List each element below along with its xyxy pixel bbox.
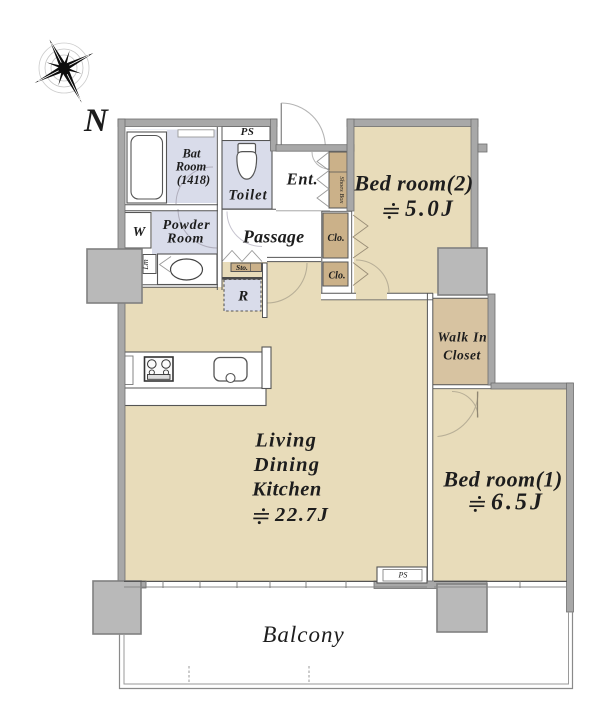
svg-text:(1418): (1418) <box>177 173 210 187</box>
svg-text:Room: Room <box>175 160 207 174</box>
svg-text:Sto.: Sto. <box>236 263 248 272</box>
svg-text:Room: Room <box>166 232 204 247</box>
svg-text:Bed room(1): Bed room(1) <box>442 466 562 491</box>
svg-text:PS: PS <box>241 126 255 138</box>
svg-text:Clo.: Clo. <box>328 233 345 244</box>
svg-text:22.7J: 22.7J <box>274 504 330 526</box>
svg-text:Shoes Box: Shoes Box <box>338 177 345 204</box>
svg-text:W: W <box>133 225 147 240</box>
svg-text:Bat: Bat <box>181 147 201 161</box>
svg-text:Passage: Passage <box>242 227 304 247</box>
svg-text:Living: Living <box>254 430 317 452</box>
svg-text:Balcony: Balcony <box>262 622 344 647</box>
svg-text:R: R <box>237 289 248 305</box>
svg-text:Clo.: Clo. <box>329 271 346 282</box>
svg-text:N: N <box>83 103 109 139</box>
svg-text:Toilet: Toilet <box>228 188 267 204</box>
svg-text:Closet: Closet <box>443 348 481 363</box>
svg-text:6.5J: 6.5J <box>491 490 545 516</box>
svg-text:Ent.: Ent. <box>286 170 319 189</box>
svg-text:Kitchen: Kitchen <box>251 479 322 501</box>
svg-text:Bed room(2): Bed room(2) <box>353 170 473 195</box>
svg-text:Dining: Dining <box>253 454 320 476</box>
svg-text:5.0J: 5.0J <box>405 196 455 221</box>
svg-text:PS: PS <box>398 571 408 580</box>
svg-text:Walk In: Walk In <box>438 330 488 345</box>
